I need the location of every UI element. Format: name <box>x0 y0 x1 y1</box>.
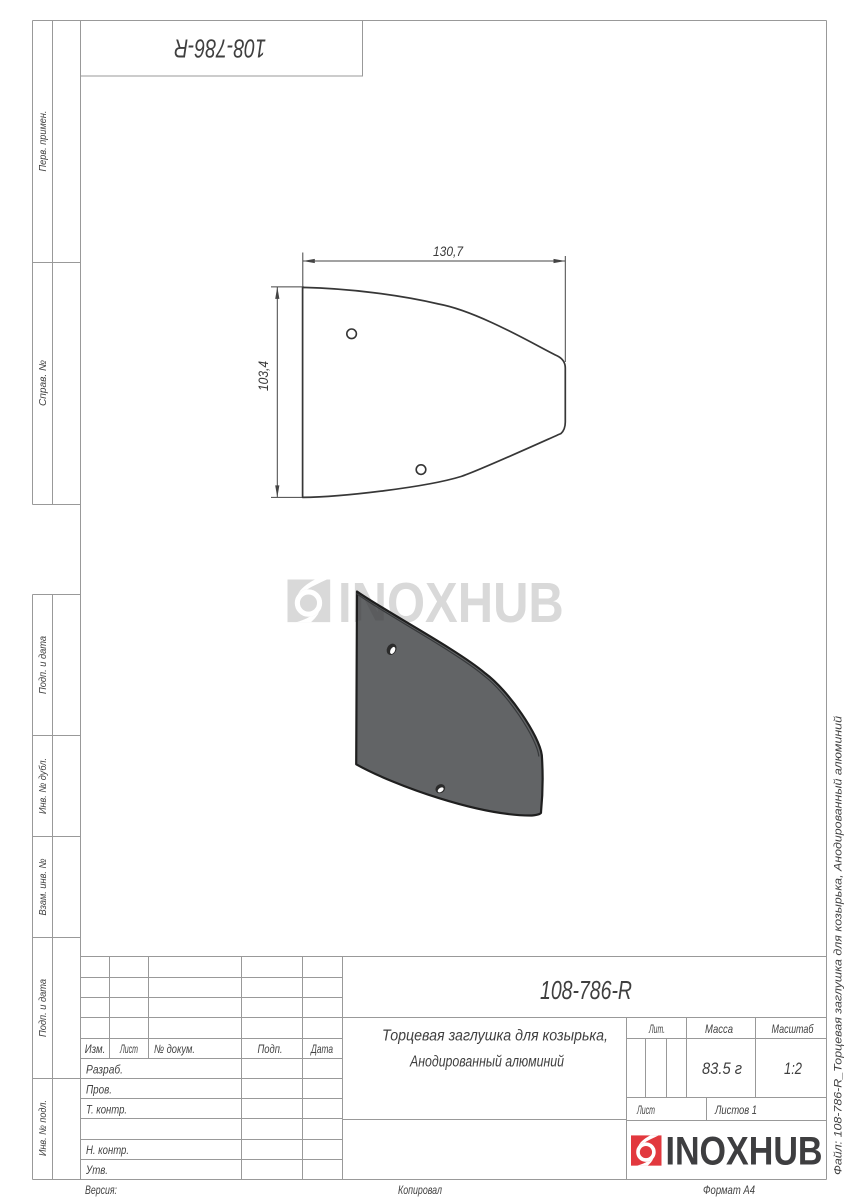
svg-text:Н. контр.: Н. контр. <box>86 1143 129 1157</box>
svg-text:Версия:: Версия: <box>85 1183 117 1197</box>
svg-text:Анодированный алюминий: Анодированный алюминий <box>409 1054 564 1071</box>
svg-text:Лит.: Лит. <box>648 1022 665 1036</box>
svg-text:Т. контр.: Т. контр. <box>86 1103 127 1117</box>
svg-text:Инв. № дубл.: Инв. № дубл. <box>37 758 49 814</box>
svg-text:Лист: Лист <box>636 1103 655 1117</box>
svg-text:Разраб.: Разраб. <box>86 1063 123 1077</box>
svg-text:Пров.: Пров. <box>86 1083 112 1097</box>
svg-text:Формат А4: Формат А4 <box>703 1183 755 1197</box>
svg-text:Утв.: Утв. <box>85 1163 108 1177</box>
svg-text:Подп. и дата: Подп. и дата <box>38 636 49 694</box>
svg-text:Подп.: Подп. <box>258 1042 283 1056</box>
svg-text:№ докум.: № докум. <box>154 1042 195 1056</box>
svg-text:Файл: 108-786-R_Торцевая заглу: Файл: 108-786-R_Торцевая заглушка для ко… <box>833 716 845 1175</box>
svg-text:Изм.: Изм. <box>85 1042 106 1056</box>
svg-text:103,4: 103,4 <box>255 361 271 391</box>
svg-text:Взам. инв. №: Взам. инв. № <box>38 858 49 915</box>
svg-text:INOXHUB: INOXHUB <box>666 1130 823 1174</box>
svg-text:Дата: Дата <box>310 1042 334 1056</box>
svg-text:Копировал: Копировал <box>398 1183 442 1197</box>
svg-text:Масса: Масса <box>705 1022 733 1036</box>
svg-text:Перв. примен.: Перв. примен. <box>38 111 49 172</box>
svg-text:108-786-R: 108-786-R <box>540 975 632 1005</box>
svg-text:Инв. № подл.: Инв. № подл. <box>38 1100 49 1156</box>
svg-text:1:2: 1:2 <box>784 1059 802 1078</box>
svg-text:130,7: 130,7 <box>433 243 464 259</box>
svg-text:Торцевая заглушка для козырька: Торцевая заглушка для козырька, <box>382 1028 608 1045</box>
svg-text:108-786-R: 108-786-R <box>174 34 266 64</box>
svg-text:Подп. и дата: Подп. и дата <box>38 979 49 1037</box>
svg-text:Масштаб: Масштаб <box>772 1022 815 1036</box>
svg-text:Лист: Лист <box>119 1042 138 1056</box>
svg-text:83.5 г: 83.5 г <box>702 1059 742 1078</box>
svg-text:Листов 1: Листов 1 <box>714 1103 757 1117</box>
svg-text:Справ. №: Справ. № <box>38 360 49 406</box>
